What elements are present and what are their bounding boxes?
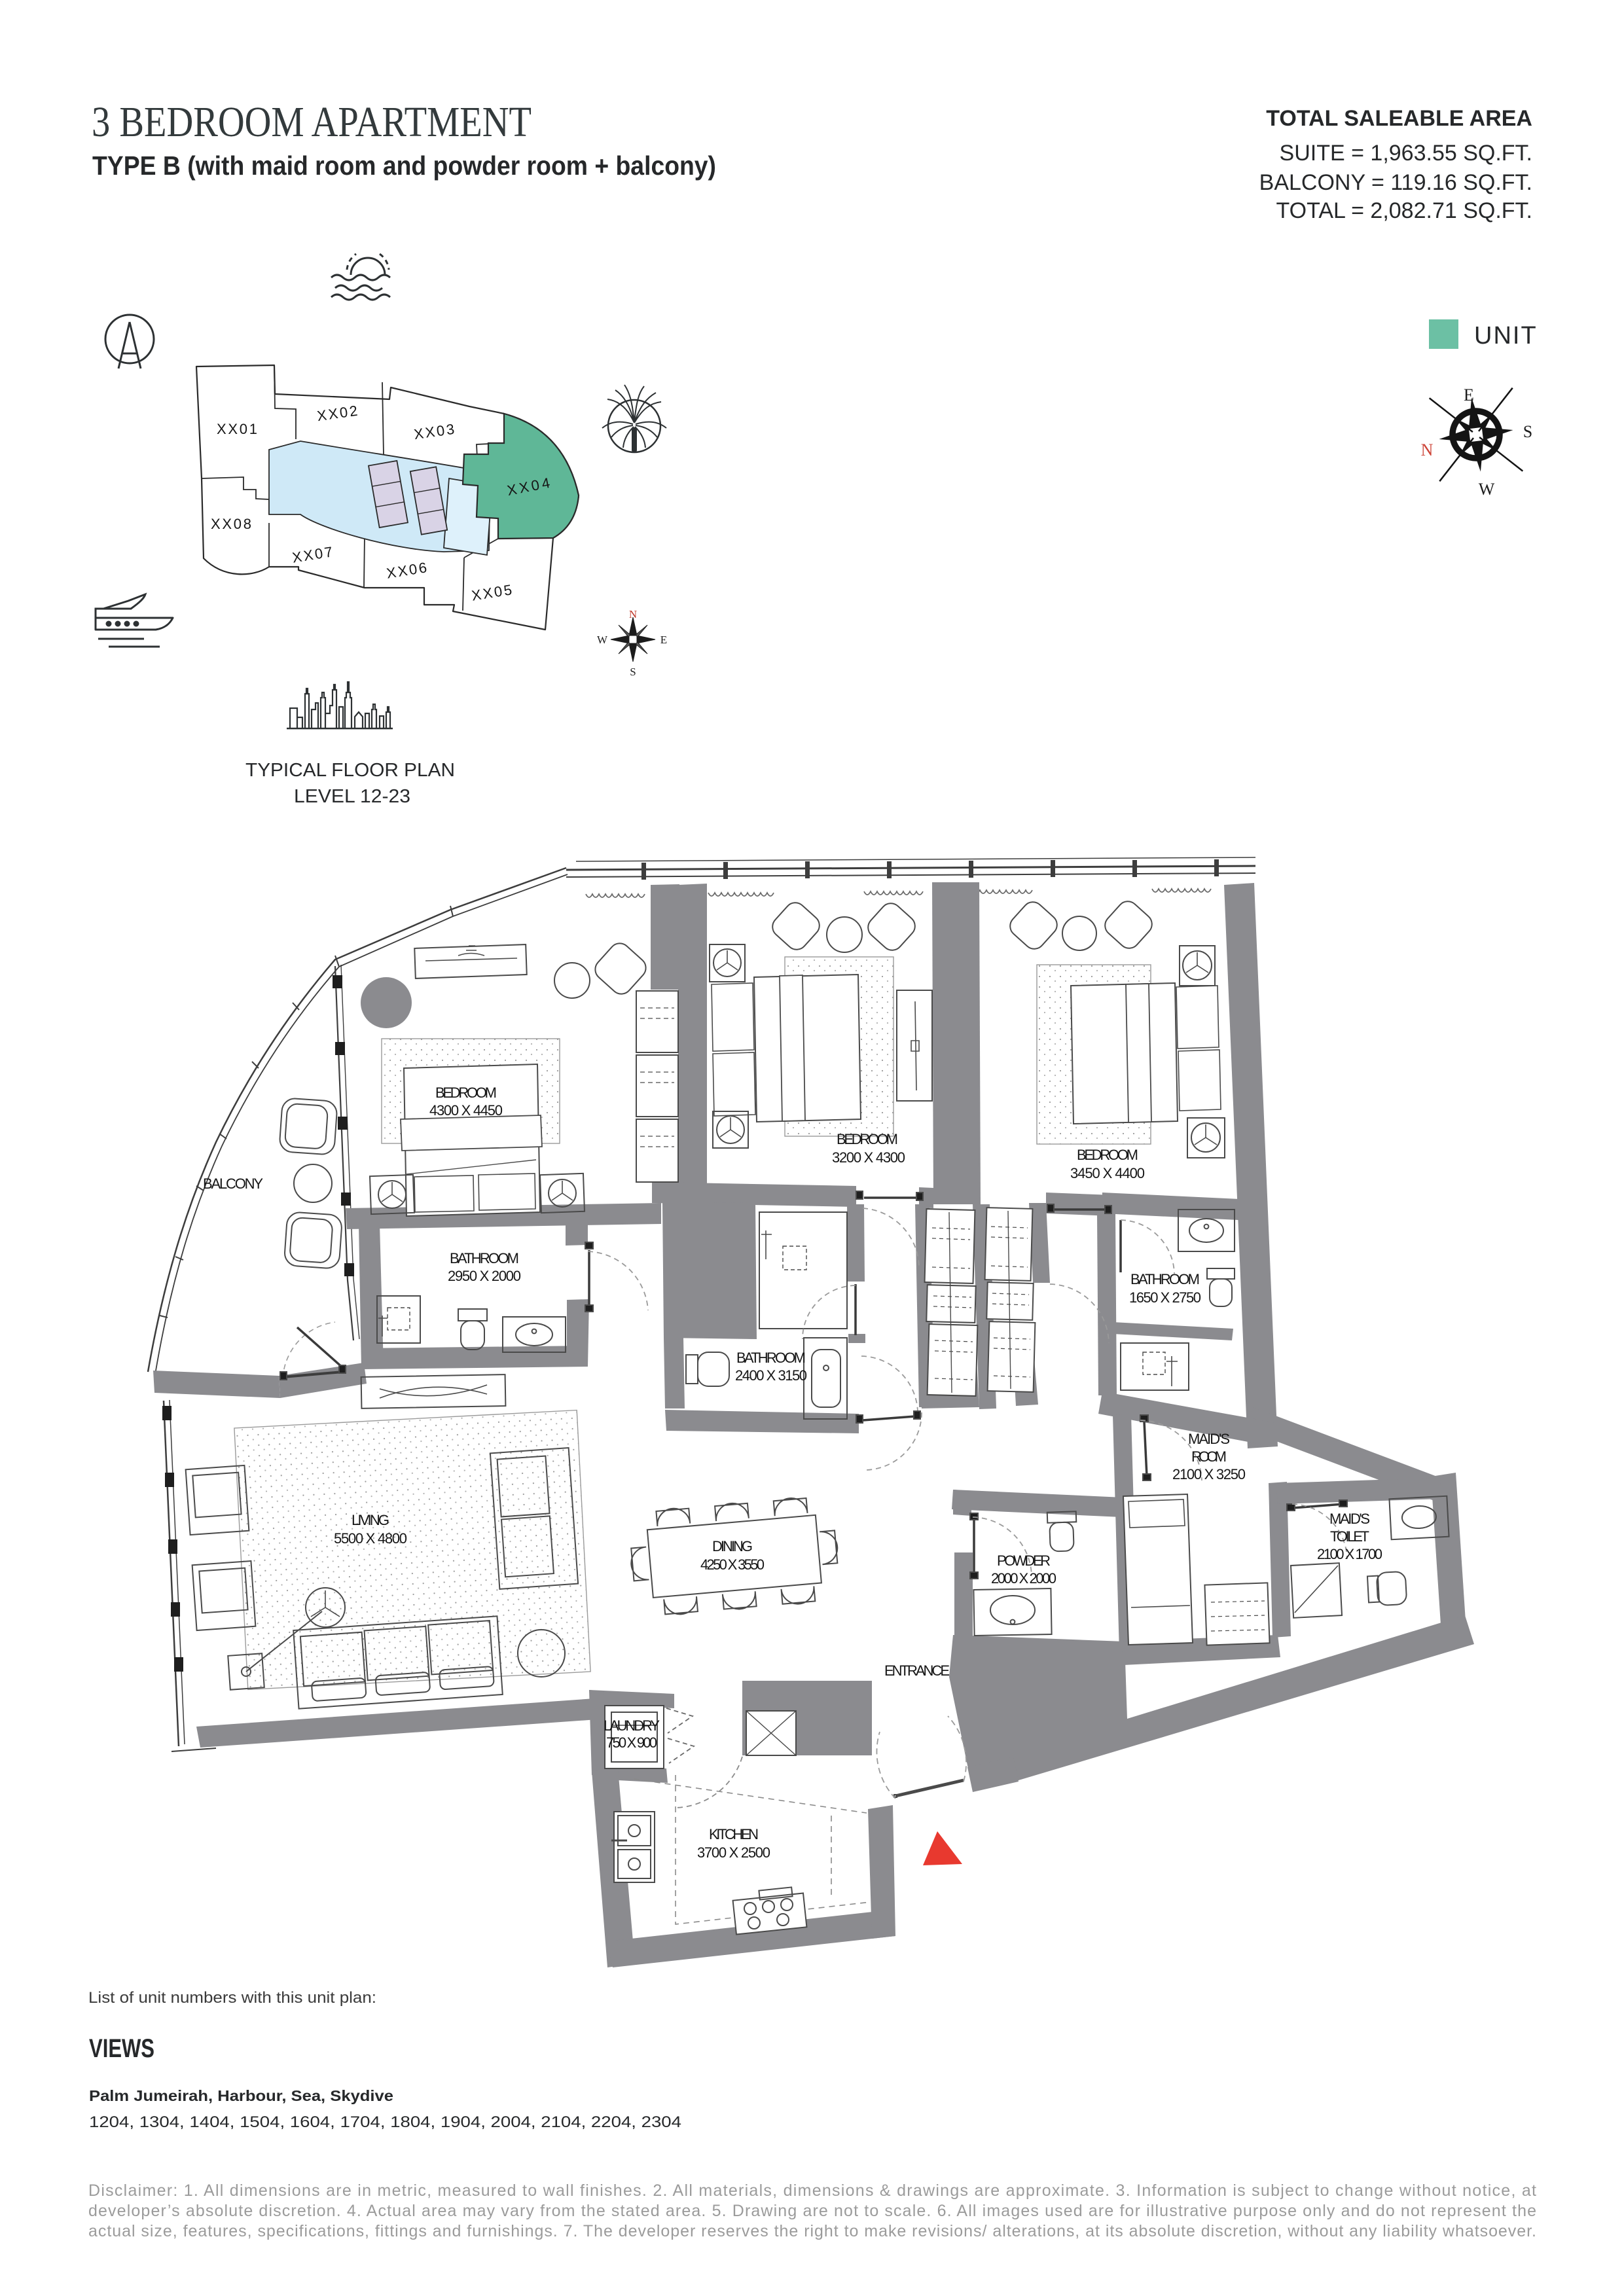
svg-text:W: W [597,634,608,646]
svg-text:3200 X 4300: 3200 X 4300 [832,1149,905,1166]
svg-text:N: N [629,608,637,620]
svg-text:3450 X 4400: 3450 X 4400 [1070,1165,1145,1181]
svg-text:2400 X 3150: 2400 X 3150 [735,1367,807,1384]
svg-text:3700 X 2500: 3700 X 2500 [697,1844,770,1861]
svg-text:TOTAL = 2,082.71 SQ.FT.: TOTAL = 2,082.71 SQ.FT. [1276,198,1533,223]
svg-text:TOILET: TOILET [1330,1528,1369,1545]
svg-text:750 X 900: 750 X 900 [606,1734,657,1751]
svg-text:Palm Jumeirah, Harbour, Sea, S: Palm Jumeirah, Harbour, Sea, Skydive [89,2087,393,2104]
svg-text:DINING: DINING [712,1538,753,1554]
svg-text:List of unit numbers with this: List of unit numbers with this unit plan… [88,1989,376,2007]
svg-text:BATHROOM: BATHROOM [736,1350,806,1366]
svg-text:5500 X 4800: 5500 X 4800 [334,1530,407,1547]
svg-text:3 BEDROOM APARTMENT: 3 BEDROOM APARTMENT [92,98,532,146]
svg-text:KITCHEN: KITCHEN [709,1826,759,1842]
svg-text:W: W [1479,480,1495,499]
svg-text:BALCONY = 119.16 SQ.FT.: BALCONY = 119.16 SQ.FT. [1259,170,1532,195]
svg-text:POWDER: POWDER [997,1552,1051,1569]
svg-text:E: E [1464,386,1474,404]
svg-text:UNIT: UNIT [1474,322,1538,350]
svg-text:TYPICAL FLOOR PLAN: TYPICAL FLOOR PLAN [245,760,455,781]
svg-text:BATHROOM: BATHROOM [450,1250,519,1266]
svg-text:XX01: XX01 [217,421,257,437]
svg-text:TOTAL SALEABLE AREA: TOTAL SALEABLE AREA [1266,106,1532,131]
svg-text:2950 X 2000: 2950 X 2000 [448,1268,521,1284]
svg-text:LAUNDRY: LAUNDRY [604,1717,660,1734]
svg-text:developer’s absolute discretio: developer’s absolute discretion. 4. Actu… [88,2202,1536,2220]
svg-text:BATHROOM: BATHROOM [1130,1271,1200,1287]
svg-text:E: E [660,634,667,646]
svg-text:S: S [1523,422,1532,441]
svg-text:N: N [1421,440,1434,459]
svg-text:LIVING: LIVING [352,1512,389,1528]
svg-text:XX08: XX08 [211,516,251,532]
svg-text:actual size, features, specifi: actual size, features, specifications, f… [88,2222,1536,2240]
svg-text:BEDROOM: BEDROOM [1077,1147,1138,1163]
svg-text:TYPE B (with maid room and pow: TYPE B (with maid room and powder room +… [92,151,716,181]
svg-text:ROOM: ROOM [1191,1448,1227,1465]
svg-text:S: S [630,666,636,678]
svg-text:ENTRANCE: ENTRANCE [884,1662,950,1679]
svg-text:Disclaimer: 1. All dimensions: Disclaimer: 1. All dimensions are in met… [88,2181,1536,2200]
svg-text:SUITE = 1,963.55 SQ.FT.: SUITE = 1,963.55 SQ.FT. [1280,141,1532,166]
svg-text:VIEWS: VIEWS [89,2034,154,2063]
svg-text:4300 X 4450: 4300 X 4450 [429,1102,503,1119]
svg-text:4250 X 3550: 4250 X 3550 [700,1556,765,1573]
svg-text:LEVEL 12-23: LEVEL 12-23 [294,786,410,807]
svg-text:BEDROOM: BEDROOM [435,1085,497,1101]
svg-text:1204, 1304, 1404, 1504, 1604,: 1204, 1304, 1404, 1504, 1604, 1704, 1804… [89,2113,681,2131]
svg-text:BALCONY: BALCONY [203,1175,263,1192]
svg-text:MAID'S: MAID'S [1188,1431,1230,1447]
svg-text:2000 X 2000: 2000 X 2000 [991,1570,1056,1587]
svg-text:BEDROOM: BEDROOM [837,1131,898,1147]
svg-text:2100 X 3250: 2100 X 3250 [1172,1466,1246,1482]
svg-text:2100 X 1700: 2100 X 1700 [1317,1546,1382,1562]
svg-text:1650 X 2750: 1650 X 2750 [1129,1289,1201,1306]
svg-text:MAID'S: MAID'S [1329,1511,1370,1527]
